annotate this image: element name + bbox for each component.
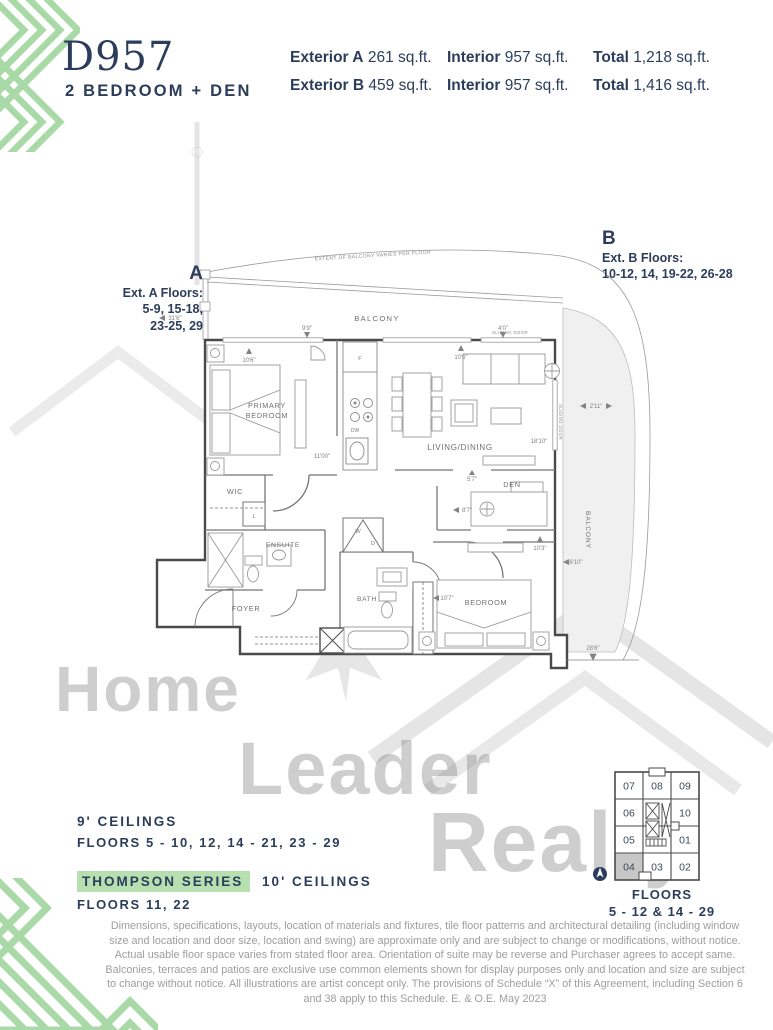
exterior-b-floors-block: B Ext. B Floors: 10-12, 14, 19-22, 26-28 xyxy=(602,231,772,283)
svg-text:DEN: DEN xyxy=(503,480,521,489)
exterior-a-floors-line2: 23-25, 29 xyxy=(85,318,203,335)
svg-text:EXTENT OF BALCONY VARIES PER F: EXTENT OF BALCONY VARIES PER FLOOR xyxy=(315,249,432,262)
svg-text:L: L xyxy=(252,514,255,520)
balcony-b-floor xyxy=(563,308,635,652)
total-a-stat: Total 1,218 sq.ft. xyxy=(593,49,743,67)
exterior-b-label: Exterior B xyxy=(290,77,364,94)
svg-text:W: W xyxy=(355,529,361,535)
svg-text:08: 08 xyxy=(651,781,663,793)
key-plan-caption-line1: FLOORS xyxy=(588,886,736,903)
svg-text:6'10": 6'10" xyxy=(569,560,582,566)
ceilings-floors: FLOORS 5 - 10, 12, 14 - 21, 23 - 29 xyxy=(77,835,372,850)
total-a-value: 1,218 sq.ft. xyxy=(633,49,710,66)
key-plan: 07 08 09 06 10 05 01 04 03 02 xyxy=(590,762,738,887)
svg-text:BALCONY: BALCONY xyxy=(354,314,399,323)
svg-text:02: 02 xyxy=(679,862,691,874)
svg-text:8'7": 8'7" xyxy=(462,508,472,514)
svg-text:03: 03 xyxy=(651,862,663,874)
exterior-b-floors-line1: 10-12, 14, 19-22, 26-28 xyxy=(602,266,772,283)
svg-text:FOYER: FOYER xyxy=(232,604,261,613)
stats-row-a: Exterior A 261 sq.ft. Interior 957 sq.ft… xyxy=(290,49,743,67)
svg-text:09: 09 xyxy=(679,781,691,793)
svg-text:F: F xyxy=(358,356,362,362)
svg-text:10'7": 10'7" xyxy=(440,596,453,602)
svg-text:18'10": 18'10" xyxy=(531,439,548,445)
exterior-a-floors-block: A Ext. A Floors: 5-9, 15-18, 23-25, 29 xyxy=(85,266,203,334)
exterior-a-floors-line1: 5-9, 15-18, xyxy=(85,301,203,318)
exterior-b-stat: Exterior B 459 sq.ft. xyxy=(290,77,447,95)
exterior-b-title: Ext. B Floors: xyxy=(602,250,772,267)
interior-a-label: Interior xyxy=(447,49,500,66)
svg-text:BEDROOM: BEDROOM xyxy=(246,411,289,420)
svg-text:D: D xyxy=(371,541,375,547)
total-b-label: Total xyxy=(593,77,629,94)
watermark-word-leader: Leader xyxy=(238,726,493,811)
exterior-b-letter: B xyxy=(602,231,772,248)
svg-text:05: 05 xyxy=(623,835,635,847)
ceilings-block: 9' CEILINGS FLOORS 5 - 10, 12, 14 - 21, … xyxy=(77,814,372,912)
compass-icon xyxy=(593,867,607,881)
svg-text:LIVING/DINING: LIVING/DINING xyxy=(427,443,493,452)
series-floors: FLOORS 11, 22 xyxy=(77,897,372,912)
svg-text:2'11": 2'11" xyxy=(590,404,603,410)
svg-text:WIC: WIC xyxy=(227,487,243,496)
svg-text:SLIDING DOOR: SLIDING DOOR xyxy=(558,404,563,440)
svg-text:4'0": 4'0" xyxy=(498,326,508,332)
interior-a-value: 957 sq.ft. xyxy=(505,49,569,66)
total-b-stat: Total 1,416 sq.ft. xyxy=(593,77,743,95)
interior-b-value: 957 sq.ft. xyxy=(505,77,569,94)
total-b-value: 1,416 sq.ft. xyxy=(633,77,710,94)
exterior-b-value: 459 sq.ft. xyxy=(368,77,432,94)
thompson-series-row: THOMPSON SERIES 10' CEILINGS xyxy=(77,874,372,889)
exterior-a-value: 261 sq.ft. xyxy=(368,49,432,66)
exterior-a-stat: Exterior A 261 sq.ft. xyxy=(290,49,447,67)
svg-text:28'6": 28'6" xyxy=(586,646,599,652)
svg-text:11'00": 11'00" xyxy=(314,454,330,460)
key-plan-caption: FLOORS 5 - 12 & 14 - 29 xyxy=(588,886,736,920)
total-a-label: Total xyxy=(593,49,629,66)
interior-a-stat: Interior 957 sq.ft. xyxy=(447,49,593,67)
svg-text:ENSUITE: ENSUITE xyxy=(266,542,300,549)
area-stats: Exterior A 261 sq.ft. Interior 957 sq.ft… xyxy=(290,49,743,105)
svg-text:06: 06 xyxy=(623,808,635,820)
svg-text:BALCONY: BALCONY xyxy=(584,511,591,549)
unit-type: 2 BEDROOM + DEN xyxy=(65,82,252,101)
thompson-series-badge: THOMPSON SERIES xyxy=(77,871,250,892)
svg-text:9'9": 9'9" xyxy=(302,326,312,332)
svg-text:5'7": 5'7" xyxy=(467,477,477,483)
series-ceilings-heading: 10' CEILINGS xyxy=(262,874,372,889)
exterior-a-title: Ext. A Floors: xyxy=(85,285,203,302)
svg-text:10'6": 10'6" xyxy=(454,355,467,361)
svg-text:07: 07 xyxy=(623,781,635,793)
svg-text:BATH: BATH xyxy=(357,596,377,603)
disclaimer-text: Dimensions, specifications, layouts, loc… xyxy=(101,919,749,1007)
exterior-a-label: Exterior A xyxy=(290,49,364,66)
svg-text:10'6": 10'6" xyxy=(242,358,255,364)
interior-b-stat: Interior 957 sq.ft. xyxy=(447,77,593,95)
key-plan-caption-line2: 5 - 12 & 14 - 29 xyxy=(588,903,736,920)
interior-b-label: Interior xyxy=(447,77,500,94)
stats-row-b: Exterior B 459 sq.ft. Interior 957 sq.ft… xyxy=(290,77,743,95)
svg-text:04: 04 xyxy=(623,862,635,874)
svg-text:PRIMARY: PRIMARY xyxy=(248,401,286,410)
unit-number: D957 xyxy=(62,34,174,80)
svg-text:BEDROOM: BEDROOM xyxy=(465,598,508,607)
svg-text:DW: DW xyxy=(351,428,360,434)
svg-text:10: 10 xyxy=(679,808,691,820)
exterior-a-letter: A xyxy=(85,266,203,283)
floorplan-page: { "header": { "unit": "D957", "type": "2… xyxy=(0,0,773,1030)
svg-text:10'3": 10'3" xyxy=(533,546,546,552)
ceilings-heading: 9' CEILINGS xyxy=(77,814,372,829)
svg-text:01: 01 xyxy=(679,835,691,847)
